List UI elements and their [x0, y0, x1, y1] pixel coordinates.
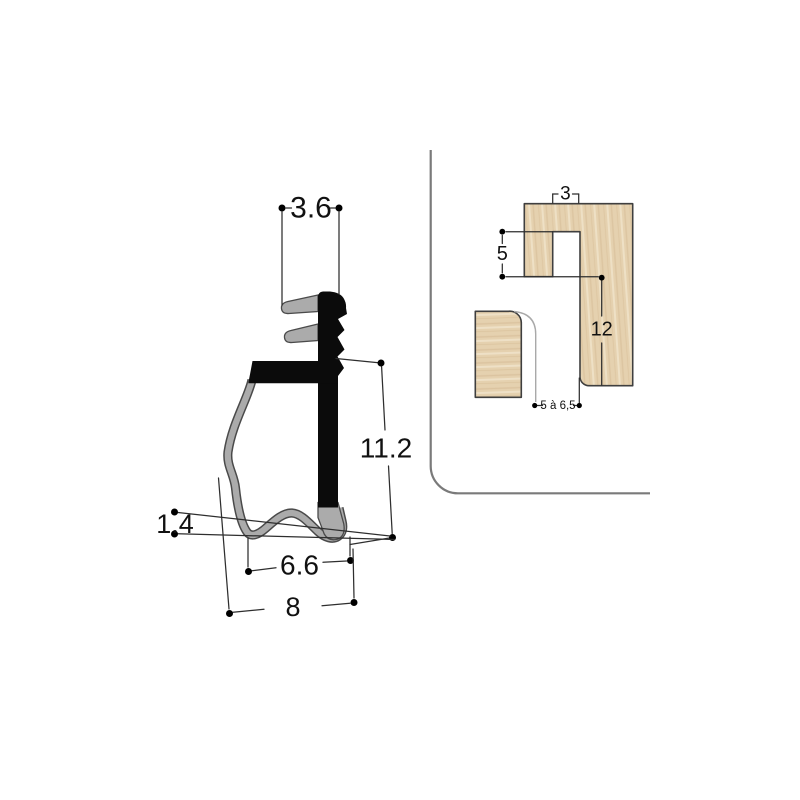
technical-drawing-page: 3.6 11.2 1.4 6.6	[0, 0, 800, 800]
dim-channel-gap-label: 5 à 6,5	[540, 400, 575, 412]
dim-base-width-label: 8	[285, 592, 300, 622]
glazing-bead-wood	[475, 311, 521, 397]
seal-profile-diagram: 3.6 11.2 1.4 6.6	[156, 192, 412, 623]
seal-fin-upper	[281, 295, 318, 314]
seal-stem-barbed	[318, 292, 347, 508]
seal-top-bar	[248, 361, 338, 383]
seal-fin-lower	[284, 324, 318, 343]
dim-lip-thickness-label: 1.4	[156, 509, 194, 539]
dim-groove-width: 3	[553, 184, 579, 205]
dim-rebate-height-label: 12	[591, 319, 613, 341]
dim-top-width-label: 3.6	[290, 192, 332, 225]
dim-inner-width: 6.6	[245, 537, 354, 581]
drawing-svg: 3.6 11.2 1.4 6.6	[0, 0, 800, 800]
wood-groove-diagram: 3 5 12 5 à 6,5	[431, 150, 650, 493]
dim-overall-height: 11.2	[336, 359, 412, 545]
dim-top-width: 3.6	[279, 192, 343, 306]
dim-groove-depth-label: 5	[497, 243, 508, 265]
dim-channel-gap: 5 à 6,5	[532, 378, 582, 412]
dim-groove-width-label: 3	[560, 184, 571, 205]
dim-inner-width-label: 6.6	[280, 550, 319, 581]
frame-profile-wood	[524, 204, 632, 386]
dim-overall-height-label: 11.2	[360, 433, 412, 464]
